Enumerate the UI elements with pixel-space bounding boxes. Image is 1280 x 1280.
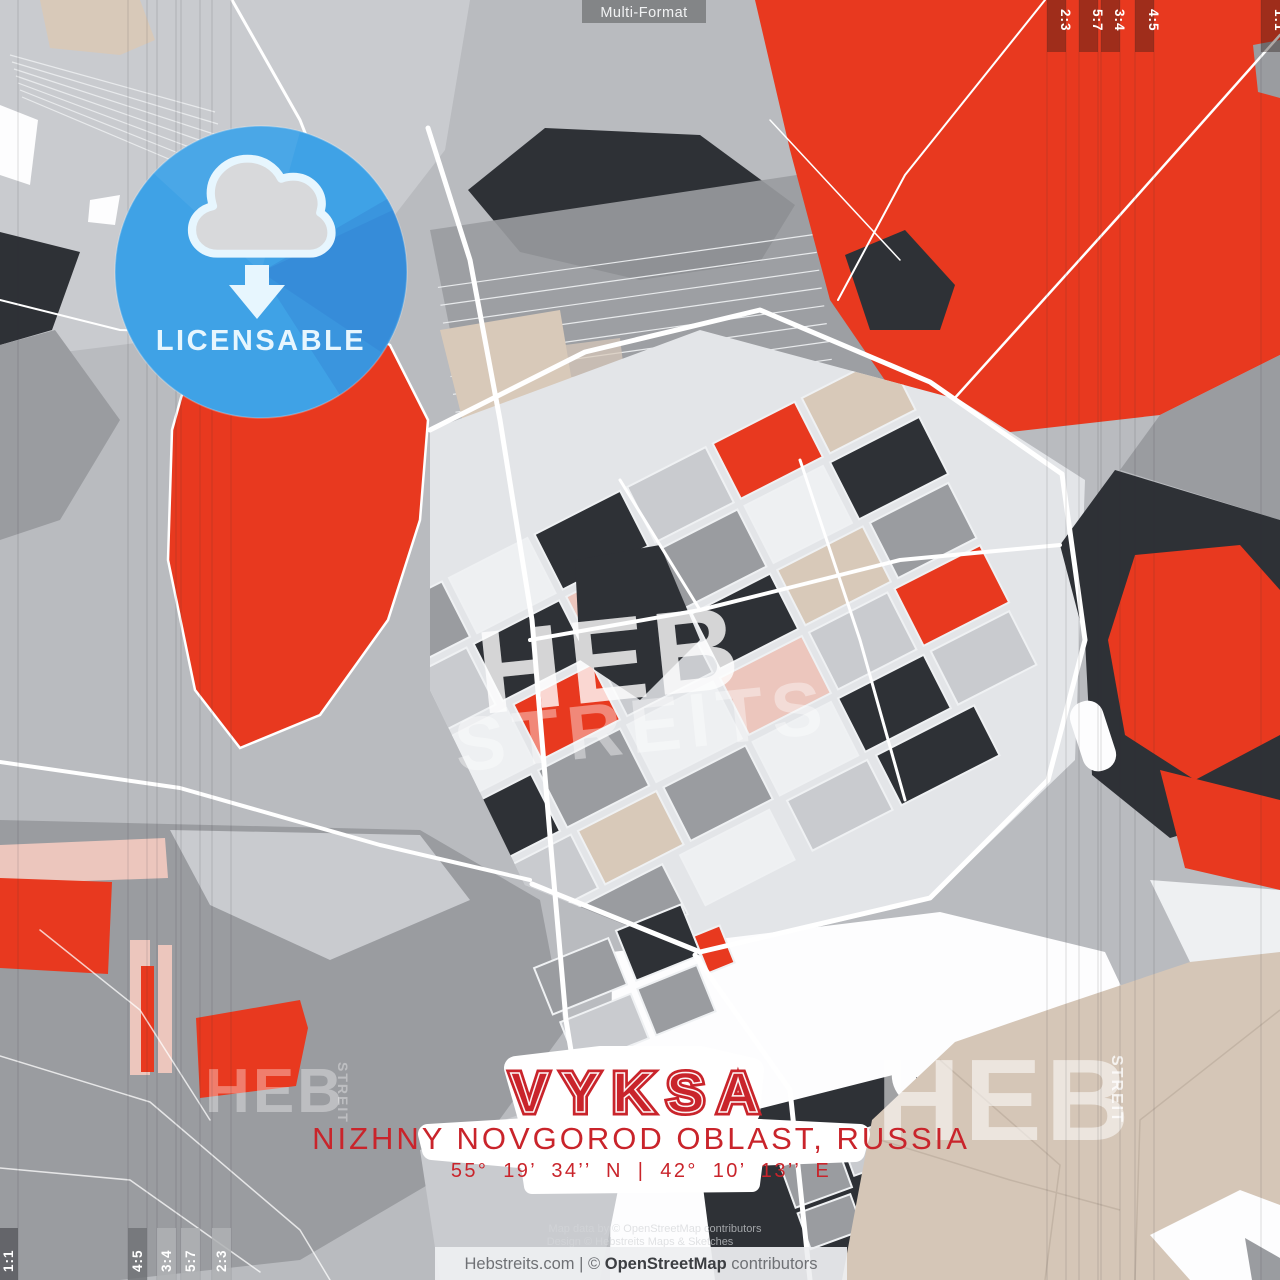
badge-label: LICENSABLE [156,325,366,357]
footer-site: Hebstreits.com | © [465,1255,605,1273]
format-label-5-7: 5:7 [1090,9,1105,32]
watermark-streits-bottom-right: STREIT [1108,1055,1125,1124]
city-title-inline: VYKSA [510,1061,771,1125]
format-label-3-4: 3:4 [159,1249,174,1272]
watermark-streits-bottom-left: STREIT [335,1062,351,1124]
coordinates-text: 55° 19’ 34’’ N | 42° 10’ 13’’ E [451,1160,831,1182]
format-label-3-4: 3:4 [1112,9,1127,32]
region-subtitle: NIZHNY NOVGOROD OBLAST, RUSSIA [312,1121,970,1156]
format-label-4-5: 4:5 [130,1249,145,1272]
format-label-2-3: 2:3 [214,1249,229,1272]
footer-bar: Hebstreits.com | © OpenStreetMap contrib… [435,1247,847,1280]
format-label-2-3: 2:3 [1058,9,1073,32]
footer-osm-brand: OpenStreetMap [605,1255,727,1273]
footer-credit[interactable]: Hebstreits.com | © OpenStreetMap contrib… [465,1255,818,1273]
format-label-1-1: 1:1 [1272,9,1280,32]
format-label-4-5: 4:5 [1146,9,1161,32]
map-canvas: HEB STREITS HEB STREIT HEB STREIT 2:3 [0,0,1280,1280]
credit-line-2: Design © Hebstreits Maps & Sketches [547,1236,734,1248]
format-label-1-1: 1:1 [1,1249,16,1272]
watermark-heb-bottom-left: HEB [205,1057,345,1126]
map-credit: Map data by © OpenStreetMap contributors… [547,1223,762,1248]
multi-format-label: Multi-Format [600,5,687,21]
map-poster: HEB STREITS HEB STREIT HEB STREIT 2:3 [0,0,1280,1280]
format-label-5-7: 5:7 [183,1249,198,1272]
multi-format-chip: Multi-Format [582,0,706,23]
credit-line-1: Map data by © OpenStreetMap contributors [549,1223,762,1235]
footer-contributors: contributors [727,1255,818,1273]
